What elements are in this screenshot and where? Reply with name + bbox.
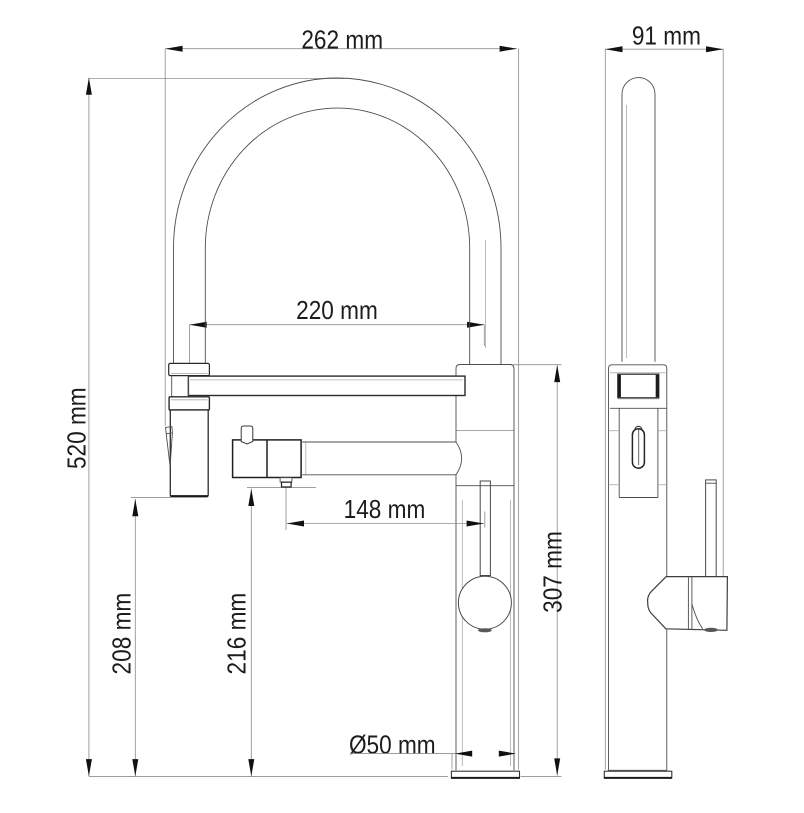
svg-text:208 mm: 208 mm: [108, 593, 137, 675]
svg-text:307 mm: 307 mm: [539, 531, 568, 613]
svg-text:148 mm: 148 mm: [344, 496, 426, 525]
svg-text:Ø50 mm: Ø50 mm: [349, 731, 436, 760]
svg-text:220 mm: 220 mm: [296, 296, 378, 325]
svg-text:91 mm: 91 mm: [632, 22, 701, 51]
svg-text:262 mm: 262 mm: [301, 26, 383, 55]
svg-text:520 mm: 520 mm: [63, 387, 92, 469]
svg-text:216 mm: 216 mm: [223, 593, 252, 675]
